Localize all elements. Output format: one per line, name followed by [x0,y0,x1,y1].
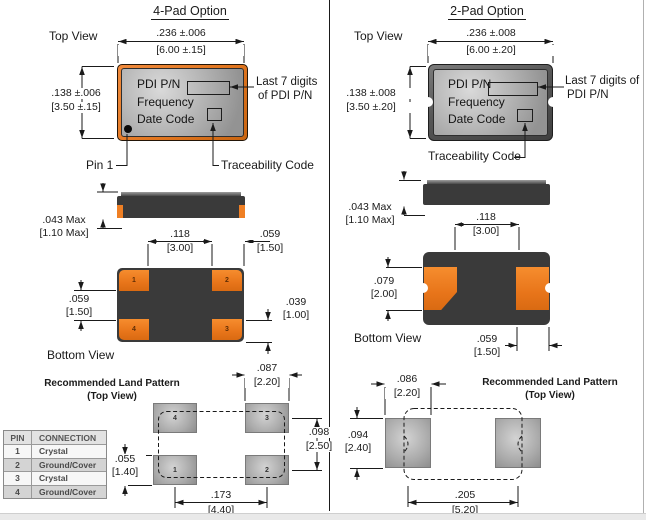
connection-cell: Crystal [32,445,106,458]
dim-thickness-in-4pad: .043 Max [34,215,94,226]
dim-body-height-mm-2pad: [3.50 ±.20] [330,102,412,113]
top-view-notch-left-2pad [423,97,433,107]
dim-pad-gap-x-in-4pad: .118 [156,229,204,240]
pin-cell: 1 [4,445,32,458]
dim-thickness-4pad [97,183,122,229]
leader-traceability-4pad [213,123,219,166]
dim-pad-gap-y-in-4pad: .059 [58,294,100,305]
dim-land-pitch-y-in-4pad: .098 [300,427,338,438]
pin1-label: Pin 1 [86,159,113,172]
traceability-label-2pad: Traceability Code [428,150,521,163]
bottom-view-notch-right-2pad [545,283,555,293]
last7-callout-line1-4pad: Last 7 digits [256,76,317,88]
land-outline-dashed-2pad [404,409,522,480]
dim-land-pad-height-in-2pad: .094 [338,430,378,441]
bottom-view-label-4pad: Bottom View [47,349,114,362]
dim-land-pad-width-mm-2pad: [2.20] [385,388,429,399]
pin-connection-table: PIN CONNECTION 1 Crystal 2 Ground/Cover … [3,430,107,499]
pin-cell: 3 [4,472,32,485]
dim-thickness-mm-4pad: [1.10 Max] [31,228,97,239]
top-view-label-2pad: Top View [354,30,402,43]
pin-table-header-row: PIN CONNECTION [4,431,106,444]
section-title-4pad: 4-Pad Option [128,4,252,18]
pin-table-header-pin: PIN [4,431,32,444]
bottom-view-label-2pad: Bottom View [354,332,421,345]
last7-callout-line1-2pad: Last 7 digits of [565,75,639,87]
dim-land-pad-height-mm-4pad: [1.40] [102,467,148,478]
dim-thickness-in-2pad: .043 Max [340,202,400,213]
dim-pad-width-mm-4pad: [1.50] [248,243,292,254]
table-row: 3 Crystal [4,471,106,485]
dim-pad-height-mm-2pad: [2.00] [362,289,406,300]
table-row: 1 Crystal [4,444,106,458]
last7-callout-line2-2pad: PDI P/N [567,89,609,101]
dim-pad-width-in-4pad: .059 [248,229,292,240]
dim-body-height-in-2pad: .138 ±.008 [330,88,412,99]
table-row: 4 Ground/Cover [4,485,106,499]
dim-body-width-mm-2pad: [6.00 ±.20] [428,45,554,56]
connection-cell: Crystal [32,472,106,485]
dim-pad-height-4pad [246,309,272,354]
dim-pad-height-in-4pad: .039 [276,297,316,308]
dim-pad-height-in-2pad: .079 [364,276,404,287]
land-pattern-title-2pad: Recommended Land Pattern [468,377,632,389]
dim-land-pad-width-in-2pad: .086 [387,374,427,385]
connection-cell: Ground/Cover [32,486,106,499]
dim-pad-gap-y-mm-4pad: [1.50] [56,307,102,318]
table-row: 2 Ground/Cover [4,458,106,472]
pin-cell: 4 [4,486,32,499]
land-pattern-subtitle-2pad: (Top View) [468,390,632,402]
dim-body-height-in-4pad: .138 ±.006 [35,88,117,99]
dim-land-pad-width-mm-4pad: [2.20] [245,377,289,388]
top-view-label-4pad: Top View [49,30,97,43]
dim-body-width-in-4pad: .236 ±.006 [118,28,244,39]
dim-land-pad-width-in-4pad: .087 [245,363,289,374]
dim-pad-width-2pad [505,327,562,351]
land-pattern-title-4pad: Recommended Land Pattern [36,378,188,390]
dim-land-pitch-y-mm-4pad: [2.50] [298,441,340,452]
dim-pad-gap-x-in-2pad: .118 [462,212,510,223]
dim-pad-width-mm-2pad: [1.50] [464,347,510,358]
dim-pad-width-in-2pad: .059 [467,334,507,345]
dim-body-width-in-2pad: .236 ±.008 [428,28,554,39]
dim-body-width-mm-4pad: [6.00 ±.15] [118,45,244,56]
dim-land-pitch-x-in-4pad: .173 [198,490,244,501]
pin-cell: 2 [4,459,32,472]
dim-pad-gap-x-mm-4pad: [3.00] [156,243,204,254]
dim-pad-gap-x-mm-2pad: [3.00] [462,226,510,237]
page-bottom-band [0,513,646,520]
land-outline-dashed-4pad [159,412,285,478]
pin-table-header-connection: CONNECTION [32,431,106,444]
dim-pad-height-mm-4pad: [1.00] [274,310,318,321]
dim-thickness-2pad [399,171,425,216]
top-view-notch-right-2pad [548,97,558,107]
dim-land-pitch-x-in-2pad: .205 [441,490,489,501]
leader-pin1 [116,134,127,166]
dim-land-pad-height-in-4pad: .055 [104,454,146,465]
dim-body-height-mm-4pad: [3.50 ±.15] [35,102,117,113]
mechanical-drawing-page: PDI P/N Frequency Date Code 1 2 4 3 4 3 … [0,0,646,520]
land-pattern-subtitle-4pad: (Top View) [36,391,188,403]
section-title-2pad: 2-Pad Option [425,4,549,18]
bottom-view-notch-left-2pad [418,283,428,293]
traceability-label-4pad: Traceability Code [221,159,314,172]
dim-thickness-mm-2pad: [1.10 Max] [337,215,403,226]
connection-cell: Ground/Cover [32,459,106,472]
last7-callout-line2-4pad: of PDI P/N [258,90,312,102]
dim-land-pad-height-mm-2pad: [2.40] [335,443,381,454]
